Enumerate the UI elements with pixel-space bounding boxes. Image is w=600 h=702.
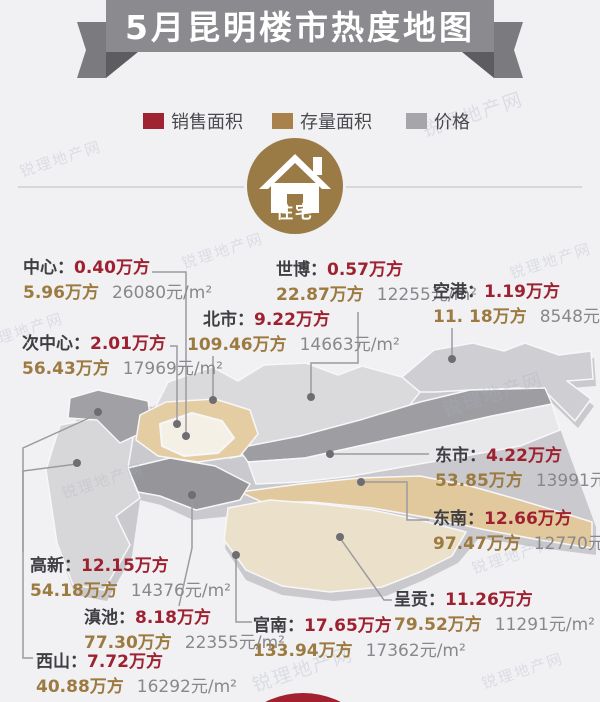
region-label-konggang: 空港：1.19万方 11. 18万方8548元/m² [433,280,600,330]
region-name: 空港： [433,282,484,302]
region-name: 高新： [30,556,81,576]
legend-item-price: 价格 [406,108,470,134]
region-label-dongnan: 东南：12.66万方 97.47万方12770元/m² [433,507,600,557]
region-stock: 54.18万方 [30,581,118,601]
region-price: 14663元/m² [300,335,400,355]
region-name: 滇池： [84,608,135,628]
region-sales: 0.57万方 [327,260,403,280]
region-sales: 17.65万方 [304,616,392,636]
region-name: 东市： [435,446,486,466]
infographic-canvas: 锐理地产网 锐理地产网 锐理地产网 锐理地产网 锐理地产网 锐理地产网 锐理地产… [0,0,600,702]
region-name: 世博： [276,260,327,280]
region-sales: 4.22万方 [486,446,562,466]
region-stock: 53.85万方 [435,471,523,491]
page-title: 5月昆明楼市热度地图 [106,4,494,52]
stock-swatch [272,113,293,129]
region-label-beishi: 北市：9.22万方 109.46万方14663元/m² [187,308,400,358]
region-price: 17969元/m² [123,359,223,379]
region-sales: 0.40万方 [74,258,150,278]
region-name: 呈贡： [394,590,445,610]
region-sales: 1.19万方 [484,282,560,302]
region-price: 11291元/m² [495,615,595,635]
region-label-gaoxin: 高新：12.15万方 54.18万方14376元/m² [30,554,231,604]
region-price: 13991元/m² [536,471,600,491]
region-label-dongshi: 东市：4.22万方 53.85万方13991元/m² [435,444,600,494]
legend-label: 存量面积 [300,108,372,134]
sales-swatch [143,113,164,129]
region-label-zhongxin: 中心：0.40万方 5.96万方26080元/m² [23,256,212,306]
region-sales: 8.18万方 [135,608,211,628]
region-price: 14376元/m² [131,581,231,601]
region-stock: 56.43万方 [22,359,110,379]
region-label-dianchi: 滇池：8.18万方 77.30万方22355元/m² [84,606,285,656]
region-label-xishan: 西山：7.72万方 40.88万方16292元/m² [36,650,237,700]
section-label: 住宅 [247,198,343,223]
region-sales: 12.66万方 [484,509,572,529]
legend-label: 销售面积 [171,108,243,134]
region-price: 8548元/m² [540,307,600,327]
legend-item-sales: 销售面积 [143,108,243,134]
legend-item-stock: 存量面积 [272,108,372,134]
region-name: 东南： [433,509,484,529]
region-price: 26080元/m² [112,283,212,303]
region-sales: 2.01万方 [90,334,166,354]
region-price: 12770元/m² [534,534,600,554]
region-price: 16292元/m² [137,677,237,697]
region-sales: 12.15万方 [81,556,169,576]
region-stock: 5.96万方 [23,283,99,303]
price-swatch [406,113,427,129]
region-name: 次中心： [22,334,90,354]
region-name: 西山： [36,652,87,672]
legend: 销售面积 存量面积 价格 [0,108,600,132]
region-stock: 109.46万方 [187,335,287,355]
region-sales: 7.72万方 [87,652,163,672]
region-price: 17362元/m² [366,641,466,661]
region-stock: 40.88万方 [36,677,124,697]
region-stock: 11. 18万方 [433,307,527,327]
region-name: 中心： [23,258,74,278]
region-sales: 11.26万方 [445,590,533,610]
legend-label: 价格 [434,108,470,134]
region-sales: 9.22万方 [254,310,330,330]
region-stock: 22.87万方 [276,285,364,305]
region-stock: 97.47万方 [433,534,521,554]
region-name: 北市： [203,310,254,330]
